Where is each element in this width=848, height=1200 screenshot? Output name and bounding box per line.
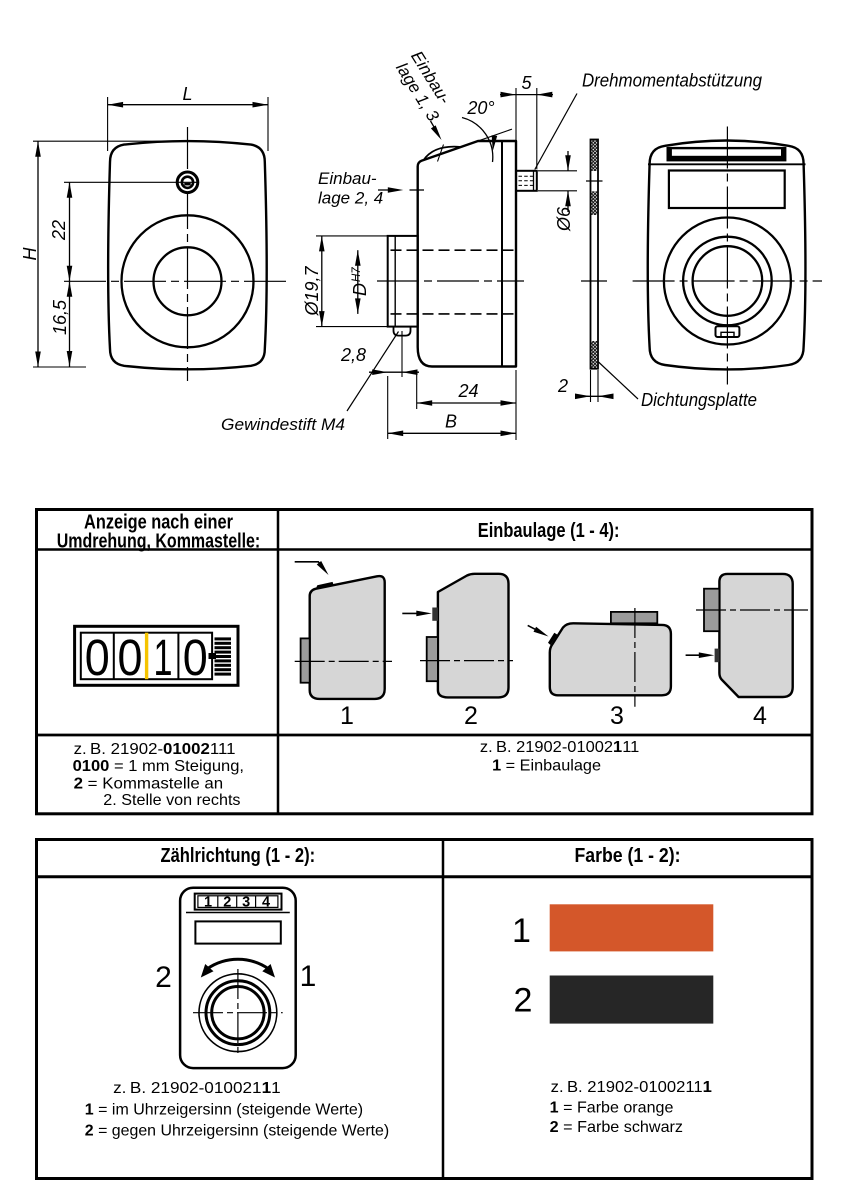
svg-text:2,8: 2,8	[340, 345, 366, 365]
svg-text:1: 1	[154, 629, 173, 686]
svg-text:z. B. 21902-01002111: z. B. 21902-01002111	[113, 1080, 281, 1097]
svg-text:2 = gegen Uhrzeigersinn (steig: 2 = gegen Uhrzeigersinn (steigende Werte…	[85, 1123, 389, 1140]
svg-text:z. B. 21902-01002111: z. B. 21902-01002111	[480, 739, 640, 756]
svg-text:1: 1	[300, 960, 317, 993]
svg-text:2: 2	[464, 702, 478, 730]
svg-text:24: 24	[457, 381, 478, 401]
svg-text:3: 3	[242, 894, 250, 910]
svg-text:H: H	[20, 247, 40, 261]
svg-text:Gewindestift M4: Gewindestift M4	[221, 415, 345, 434]
svg-text:z. B. 21902-01002111: z. B. 21902-01002111	[551, 1079, 712, 1096]
svg-text:z. B. 21902-01002111: z. B. 21902-01002111	[74, 741, 236, 758]
svg-text:1 = Farbe orange: 1 = Farbe orange	[550, 1100, 674, 1117]
svg-text:2 = Kommastelle an: 2 = Kommastelle an	[74, 775, 224, 792]
svg-text:0: 0	[85, 629, 110, 686]
svg-text:Umdrehung, Kommastelle:: Umdrehung, Kommastelle:	[57, 530, 261, 552]
svg-text:5: 5	[521, 73, 532, 93]
svg-text:4: 4	[753, 702, 767, 730]
svg-text:1 = Einbaulage: 1 = Einbaulage	[492, 757, 601, 774]
svg-text:0100 = 1 mm Steigung,: 0100 = 1 mm Steigung,	[73, 758, 244, 775]
svg-text:0: 0	[118, 629, 143, 686]
svg-text:1: 1	[512, 912, 531, 950]
svg-text:2 = Farbe schwarz: 2 = Farbe schwarz	[550, 1119, 683, 1136]
svg-text:Ø19,7: Ø19,7	[302, 266, 322, 317]
svg-text:2: 2	[155, 961, 172, 994]
svg-text:22: 22	[49, 220, 69, 241]
svg-text:Einbaulage (1 - 4):: Einbaulage (1 - 4):	[478, 520, 620, 542]
svg-text:Ø6: Ø6	[554, 206, 574, 232]
svg-text:1: 1	[340, 702, 354, 730]
svg-text:Farbe (1 - 2):: Farbe (1 - 2):	[575, 845, 681, 867]
svg-text:2. Stelle von rechts: 2. Stelle von rechts	[103, 792, 240, 809]
svg-text:4: 4	[262, 894, 270, 910]
svg-text:B: B	[445, 412, 457, 432]
svg-text:Zählrichtung (1 - 2):: Zählrichtung (1 - 2):	[160, 845, 315, 867]
svg-text:2: 2	[223, 894, 231, 910]
svg-text:2: 2	[514, 982, 533, 1020]
svg-text:1 = im Uhrzeigersinn (steigend: 1 = im Uhrzeigersinn (steigende Werte)	[85, 1102, 363, 1119]
svg-text:20°: 20°	[466, 98, 494, 118]
svg-text:1: 1	[204, 894, 212, 910]
svg-text:L: L	[182, 84, 192, 104]
svg-text:2: 2	[557, 376, 568, 396]
svg-text:Dichtungsplatte: Dichtungsplatte	[641, 390, 757, 410]
svg-text:3: 3	[610, 702, 624, 730]
svg-text:Drehmomentabstützung: Drehmomentabstützung	[582, 71, 762, 91]
svg-text:Einbau-lage 2, 4: Einbau-lage 2, 4	[318, 169, 383, 208]
svg-text:0: 0	[183, 629, 208, 686]
svg-text:16,5: 16,5	[50, 299, 70, 335]
